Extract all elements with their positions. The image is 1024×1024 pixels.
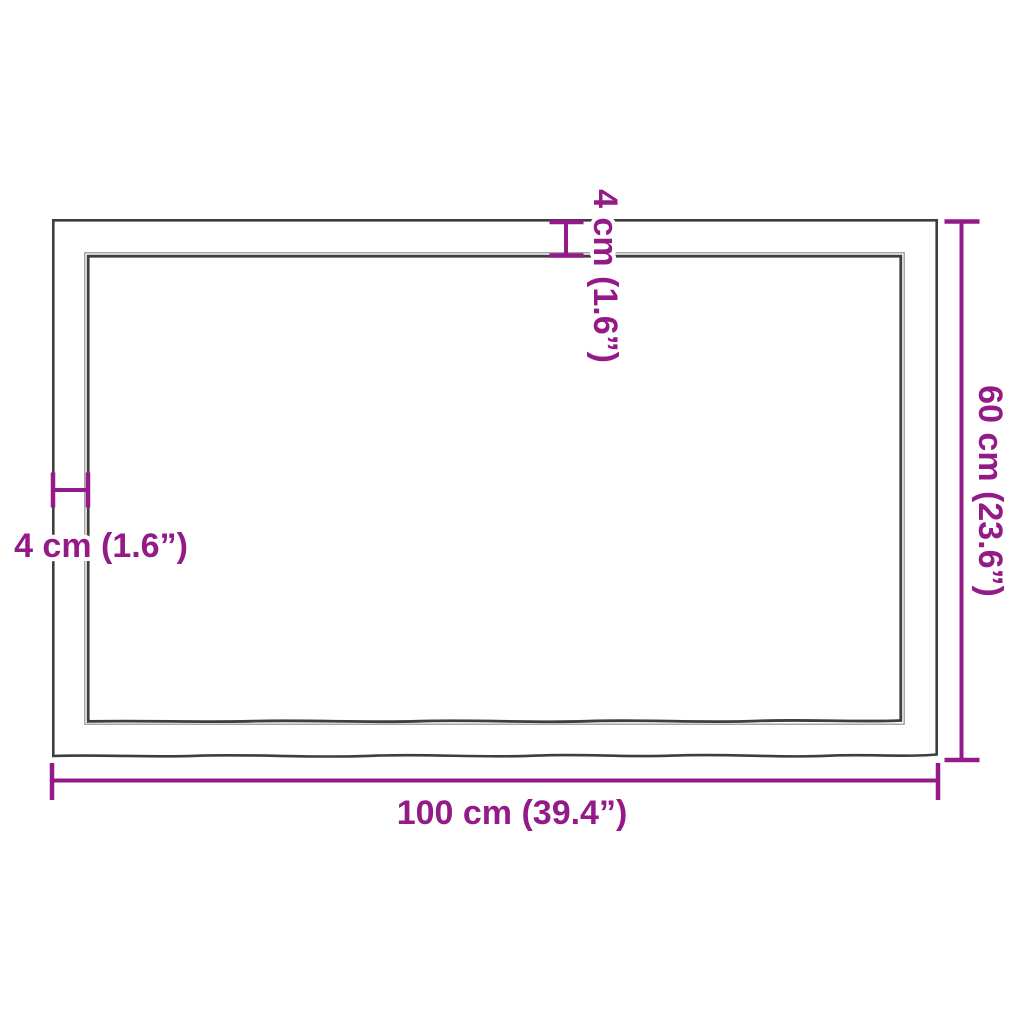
edge-thickness-top-label: 4 cm (1.6”): [586, 189, 624, 363]
height-label: 60 cm (23.6”): [971, 385, 1009, 597]
edge-thickness-left-label: 4 cm (1.6”): [14, 527, 188, 565]
diagram-canvas: 4 cm (1.6”) 4 cm (1.6”) 60 cm (23.6”) 10…: [0, 0, 1024, 1024]
tabletop-inner-outline-highlight: [85, 253, 904, 724]
width-label: 100 cm (39.4”): [397, 794, 628, 832]
tabletop-inner-outline: [88, 256, 901, 722]
edge-thickness-top-dimension: 4 cm (1.6”): [550, 189, 625, 363]
edge-thickness-left-dimension: 4 cm (1.6”): [14, 473, 188, 566]
tabletop-outer-outline: [53, 220, 936, 756]
height-dimension: 60 cm (23.6”): [945, 222, 1010, 761]
dimension-diagram: 4 cm (1.6”) 4 cm (1.6”) 60 cm (23.6”) 10…: [0, 0, 1024, 1024]
width-dimension: 100 cm (39.4”): [52, 763, 938, 832]
